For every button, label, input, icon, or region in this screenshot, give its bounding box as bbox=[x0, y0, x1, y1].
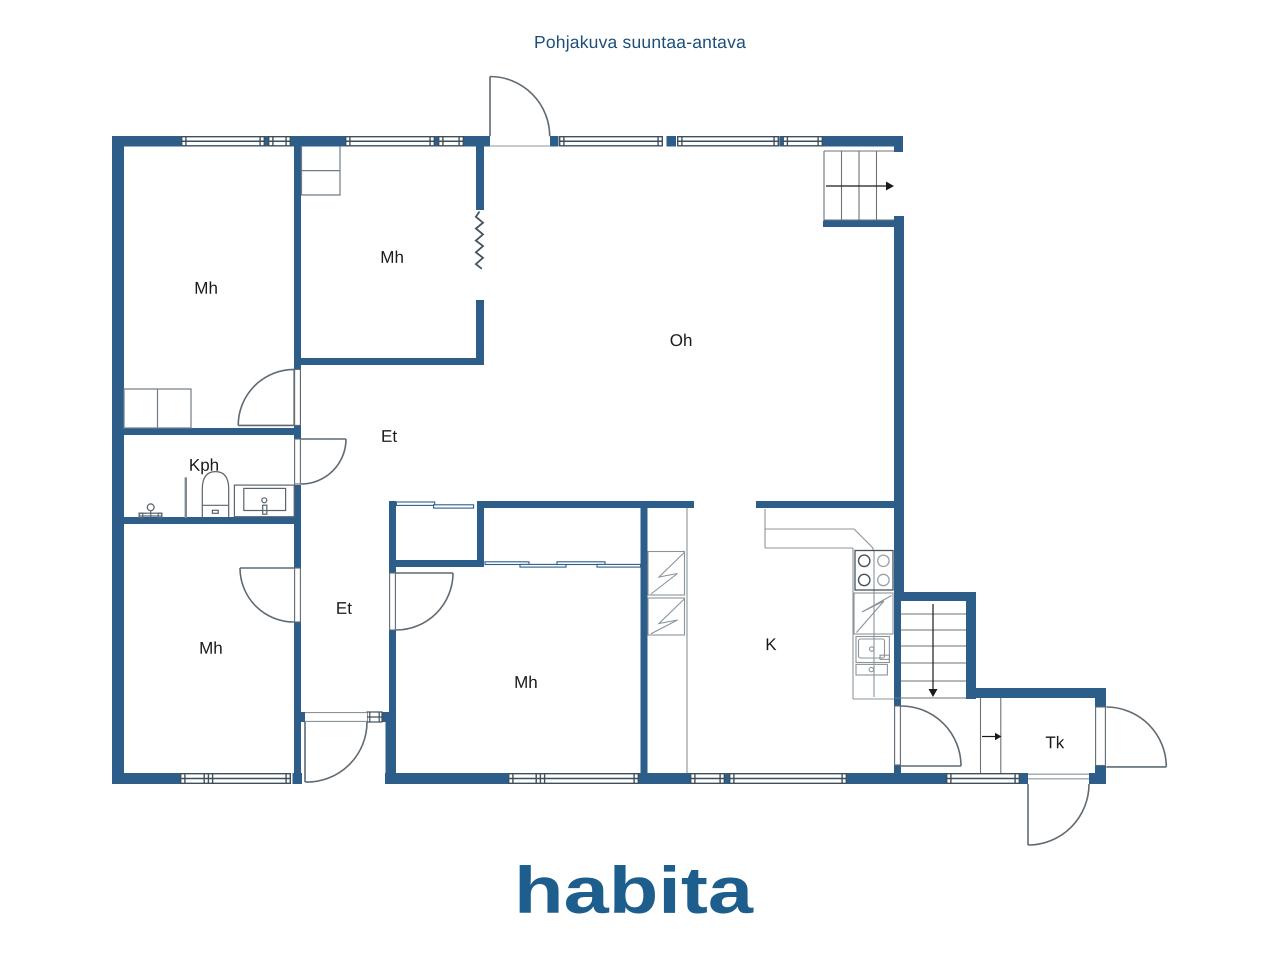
svg-text:Mh: Mh bbox=[199, 639, 223, 658]
svg-text:K: K bbox=[765, 635, 777, 654]
svg-text:Mh: Mh bbox=[194, 279, 218, 298]
svg-text:Oh: Oh bbox=[670, 331, 693, 350]
svg-text:Pohjakuva suuntaa-antava: Pohjakuva suuntaa-antava bbox=[534, 32, 746, 52]
svg-text:Mh: Mh bbox=[514, 673, 538, 692]
svg-text:Kph: Kph bbox=[189, 456, 219, 475]
svg-text:Tk: Tk bbox=[1045, 733, 1064, 752]
svg-text:Mh: Mh bbox=[380, 248, 404, 267]
svg-text:Et: Et bbox=[381, 427, 397, 446]
svg-text:Et: Et bbox=[336, 599, 352, 618]
svg-text:habita: habita bbox=[514, 853, 754, 927]
